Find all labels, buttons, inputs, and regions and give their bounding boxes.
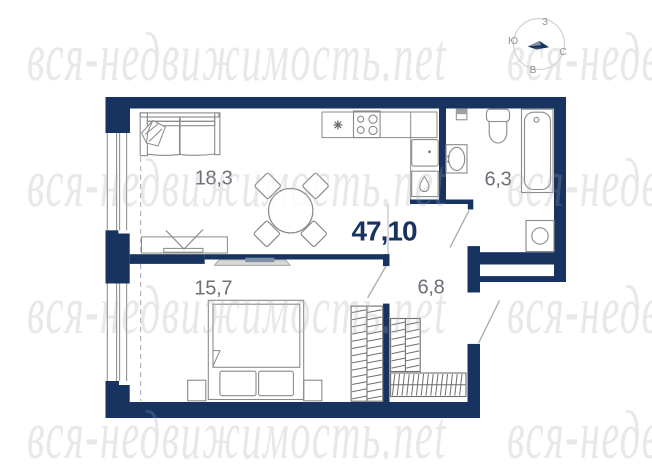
svg-text:вся-недвижимость.net: вся-недвижимость.net [27, 273, 447, 349]
svg-text:вся-недвижимость.net: вся-недвижимость.net [27, 20, 447, 96]
svg-text:вся-недвижимость.net: вся-недвижимость.net [27, 398, 447, 466]
svg-text:вся-недвижимость.net: вся-недвижимость.net [507, 273, 652, 349]
svg-text:вся-недвижимость.net: вся-недвижимость.net [507, 20, 652, 96]
svg-text:вся-недвижимость.net: вся-недвижимость.net [27, 146, 447, 222]
svg-text:вся-недвижимость.net: вся-недвижимость.net [507, 398, 652, 466]
svg-text:вся-недвижимость.net: вся-недвижимость.net [507, 146, 652, 222]
